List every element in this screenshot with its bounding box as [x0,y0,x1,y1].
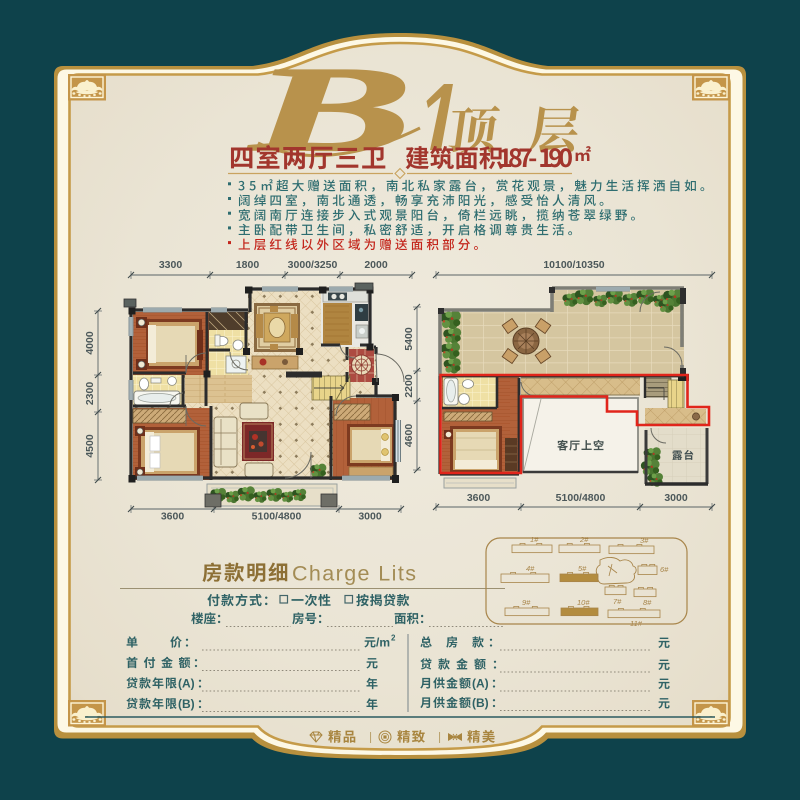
svg-text:7#: 7# [613,597,622,606]
svg-text:10100/10350: 10100/10350 [543,259,604,271]
svg-text:2200: 2200 [403,374,415,398]
svg-text:4000: 4000 [84,331,96,355]
svg-text:(A): (A) [178,677,195,691]
svg-text:1800: 1800 [236,259,260,271]
svg-text:(B): (B) [472,696,489,710]
svg-text:3#: 3# [640,536,649,545]
svg-text:5100/4800: 5100/4800 [252,511,302,523]
svg-text:9#: 9# [522,598,531,607]
svg-text:8#: 8# [643,598,652,607]
svg-text:4500: 4500 [84,434,96,458]
svg-text:6#: 6# [660,565,669,574]
svg-text:3000: 3000 [358,511,382,523]
svg-text:3000: 3000 [664,492,688,504]
svg-text:5100/4800: 5100/4800 [556,492,606,504]
svg-text:/m: /m [376,636,390,650]
svg-text:3600: 3600 [467,492,491,504]
svg-text:1#: 1# [530,535,539,544]
svg-text:11#: 11# [630,619,643,628]
svg-text:2000: 2000 [364,259,388,271]
svg-text:2: 2 [391,634,396,643]
svg-text:|: | [369,730,372,744]
svg-text:4600: 4600 [403,424,415,448]
svg-text:(A): (A) [472,677,489,691]
svg-text:(B): (B) [178,697,195,711]
svg-text:2#: 2# [579,535,589,544]
svg-text:5400: 5400 [403,327,415,351]
svg-text:3600: 3600 [161,511,185,523]
svg-text:2300: 2300 [84,382,96,406]
svg-text:3300: 3300 [159,259,183,271]
svg-text:10#: 10# [577,598,590,607]
svg-text:|: | [438,730,441,744]
svg-text:4#: 4# [526,564,535,573]
svg-text:Charge Lits: Charge Lits [292,562,417,586]
svg-text:3000/3250: 3000/3250 [288,259,338,271]
svg-text:5#: 5# [578,564,587,573]
